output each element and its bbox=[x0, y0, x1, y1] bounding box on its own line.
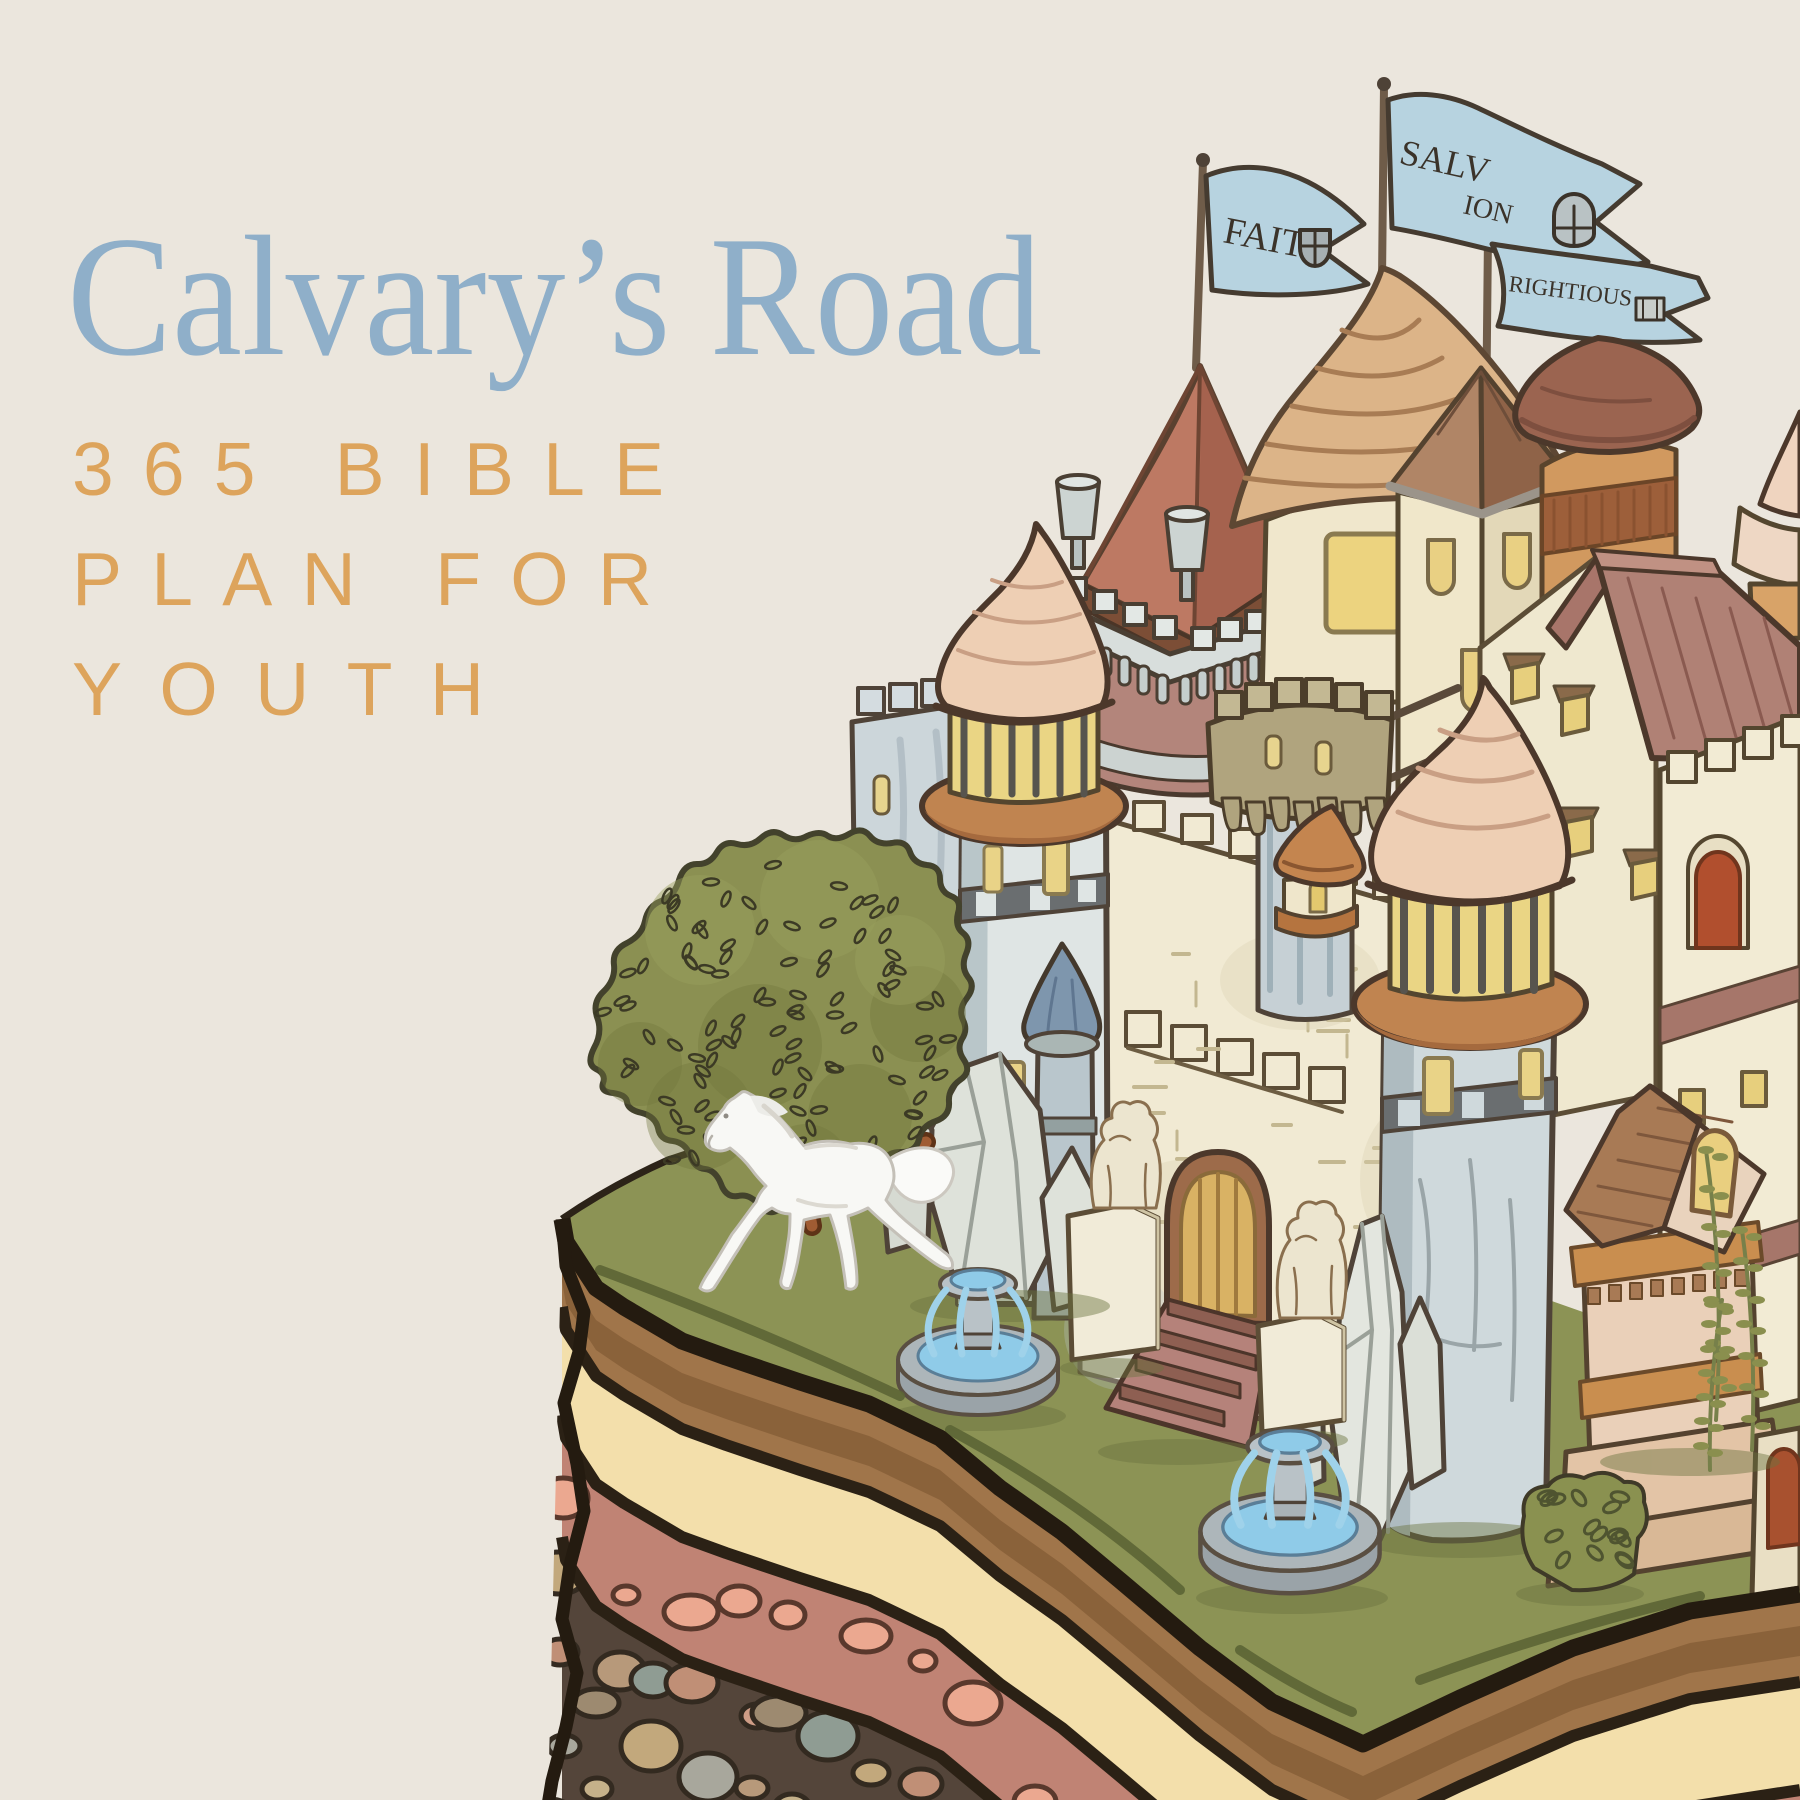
svg-text:365 BIBLE: 365 BIBLE bbox=[72, 427, 664, 511]
svg-text:Calvary’s Road: Calvary’s Road bbox=[67, 202, 1042, 392]
